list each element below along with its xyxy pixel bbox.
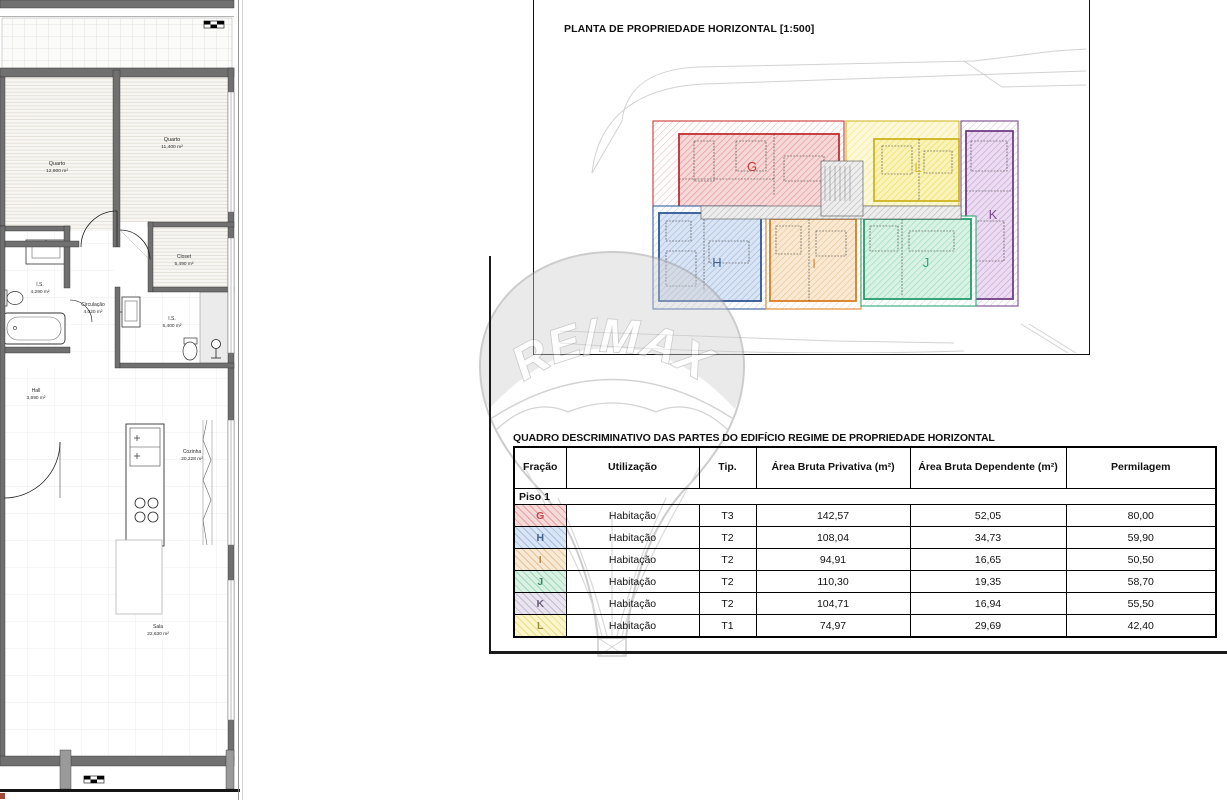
col-fracao: Fração [514, 447, 566, 489]
quadro-row: KHabitaçãoT2104,7116,9455,50 [514, 593, 1216, 615]
room-area: 4,290 m² [31, 289, 50, 295]
quadro-cell: 34,73 [910, 527, 1066, 549]
room-label: Sala [153, 624, 163, 630]
unit-label: K [989, 207, 998, 222]
room-area: 5,400 m² [163, 323, 182, 329]
quadro-cell: 110,30 [756, 571, 910, 593]
quadro-title: QUADRO DESCRIMINATIVO DAS PARTES DO EDIF… [513, 432, 995, 444]
quadro-cell: 52,05 [910, 505, 1066, 527]
room-area: 4,020 m² [84, 309, 103, 315]
quadro-row: JHabitaçãoT2110,3019,3558,70 [514, 571, 1216, 593]
dining-table [116, 540, 162, 614]
shower-area [200, 292, 230, 363]
apartment-floorplan: Quarto 12,900 m² Quarto 11,400 m² Closet… [0, 0, 248, 800]
room-label: Quarto [164, 137, 180, 143]
quadro-header-row: Fração Utilização Tip. Área Bruta Privat… [514, 447, 1216, 489]
fracao-cell: J [514, 571, 566, 593]
toilet-icon [183, 342, 197, 360]
room-label: Closet [177, 254, 192, 260]
room-label: Quarto [49, 161, 65, 167]
quadro-cell: Habitação [566, 549, 699, 571]
piso-section-row: Piso 1 [514, 489, 1216, 505]
unit-label: I [812, 256, 816, 271]
quadro-cell: 19,35 [910, 571, 1066, 593]
col-dependente: Área Bruta Dependente (m²) [910, 447, 1066, 489]
quadro-cell: T3 [699, 505, 756, 527]
planta-panel: PLANTA DE PROPRIEDADE HORIZONTAL [1:500] [533, 0, 1090, 355]
quadro-row: IHabitaçãoT294,9116,6550,50 [514, 549, 1216, 571]
col-utilizacao: Utilização [566, 447, 699, 489]
quadro-cell: 16,65 [910, 549, 1066, 571]
quadro-cell: 42,40 [1066, 615, 1216, 638]
col-permilagem: Permilagem [1066, 447, 1216, 489]
quadro-cell: 80,00 [1066, 505, 1216, 527]
unit-label: J [923, 255, 930, 270]
room-label: Circulação [81, 302, 105, 308]
quadro-cell: 16,94 [910, 593, 1066, 615]
fracao-cell: G [514, 505, 566, 527]
document-page: Quarto 12,900 m² Quarto 11,400 m² Closet… [0, 0, 1227, 800]
washbasin-icon [122, 297, 140, 327]
room-label: I.S. [36, 282, 44, 288]
quadro-cell: Habitação [566, 571, 699, 593]
unit-label: H [712, 255, 721, 270]
quadro-cell: Habitação [566, 527, 699, 549]
room-area: 22,630 m² [147, 631, 169, 637]
shower-head-icon [212, 340, 221, 349]
quadro-cell: T2 [699, 571, 756, 593]
quadro-cell: 58,70 [1066, 571, 1216, 593]
quadro-cell: Habitação [566, 505, 699, 527]
room-area: 3,690 m² [27, 395, 46, 401]
col-privativa: Área Bruta Privativa (m²) [756, 447, 910, 489]
fracao-cell: K [514, 593, 566, 615]
site-plan: G H I J K L [534, 0, 1088, 353]
piso-label: Piso 1 [514, 489, 1216, 505]
quadro-cell: 108,04 [756, 527, 910, 549]
slab-line [0, 789, 240, 792]
quadro-cell: 29,69 [910, 615, 1066, 638]
quadro-table: Fração Utilização Tip. Área Bruta Privat… [513, 446, 1217, 638]
quadro-rows: GHabitaçãoT3142,5752,0580,00HHabitaçãoT2… [514, 505, 1216, 638]
elevation-marker [204, 21, 224, 28]
quadro-cell: 94,91 [756, 549, 910, 571]
room-area: 5,490 m² [175, 261, 194, 267]
quadro-row: HHabitaçãoT2108,0434,7359,90 [514, 527, 1216, 549]
unit-label: L [914, 160, 921, 175]
room-area: 20,228 m² [181, 456, 203, 462]
fracao-cell: H [514, 527, 566, 549]
quadro-cell: T2 [699, 549, 756, 571]
sheet-edge [489, 651, 1227, 654]
quadro-cell: 104,71 [756, 593, 910, 615]
quadro-cell: 59,90 [1066, 527, 1216, 549]
room-label: Cozinha [183, 449, 202, 455]
quadro-cell: Habitação [566, 593, 699, 615]
room-label: I.S. [168, 316, 176, 322]
quadro-cell: T2 [699, 527, 756, 549]
fracao-cell: L [514, 615, 566, 638]
fracao-cell: I [514, 549, 566, 571]
sheet-edge [489, 256, 491, 653]
quadro-cell: 142,57 [756, 505, 910, 527]
quadro-cell: T1 [699, 615, 756, 638]
quadro-cell: 55,50 [1066, 593, 1216, 615]
unit-J [861, 216, 976, 306]
stamp-mark [0, 793, 5, 799]
bathtub-icon [3, 313, 65, 344]
quadro-cell: T2 [699, 593, 756, 615]
cooktop-icon [135, 498, 145, 508]
unit-label: G [747, 159, 757, 174]
room-label: Hall [32, 388, 41, 394]
quadro-cell: 74,97 [756, 615, 910, 638]
quadro-cell: 50,50 [1066, 549, 1216, 571]
quadro-row: GHabitaçãoT3142,5752,0580,00 [514, 505, 1216, 527]
terrace-floor [2, 18, 232, 68]
room-area: 12,900 m² [46, 168, 68, 174]
quadro-row: LHabitaçãoT174,9729,6942,40 [514, 615, 1216, 638]
quadro-cell: Habitação [566, 615, 699, 638]
elevation-marker [84, 776, 104, 783]
col-tip: Tip. [699, 447, 756, 489]
room-area: 11,400 m² [161, 144, 183, 150]
quadro-table-block: Fração Utilização Tip. Área Bruta Privat… [513, 446, 1217, 638]
unit-H [653, 206, 766, 309]
